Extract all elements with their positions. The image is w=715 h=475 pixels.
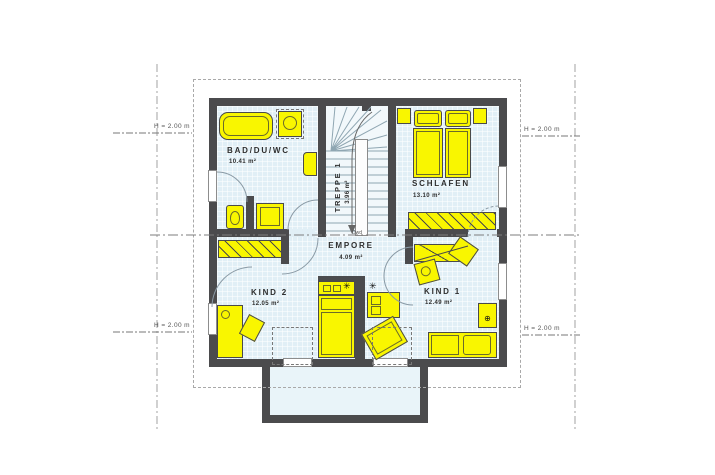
floor-plan: ⊕ [0, 0, 715, 475]
ceiling-light-icon-left: ✳ [343, 282, 351, 291]
room-label-bad: BAD/DU/WC [227, 146, 290, 155]
room-label-empore: EMPORE [316, 241, 386, 250]
height-marker-right-bottom: H = 2.00 m [524, 325, 560, 332]
height-marker-left-bottom: H = 2.00 m [110, 322, 190, 329]
room-label-kind1: KIND 1 [424, 287, 461, 296]
room-area-treppe: 3.96 m² [345, 167, 353, 217]
room-label-kind2: KIND 2 [251, 288, 288, 297]
room-area-kind1: 12.49 m² [425, 300, 452, 306]
height-marker-right-top: H = 2.00 m [524, 126, 560, 133]
stair-bottom-note: Dwd [352, 230, 362, 236]
room-area-kind2: 12.05 m² [252, 301, 279, 307]
room-area-empore: 4.09 m² [316, 255, 386, 261]
plan-lines [0, 0, 715, 475]
room-area-schlafen: 13.10 m² [413, 193, 440, 199]
height-marker-left-top: H = 2.00 m [110, 123, 190, 130]
room-label-schlafen: SCHLAFEN [412, 179, 470, 188]
room-area-bad: 10.41 m² [229, 159, 256, 165]
room-label-treppe: TREPPE 1 [333, 144, 345, 230]
ceiling-light-icon-right: ✳ [369, 282, 377, 291]
